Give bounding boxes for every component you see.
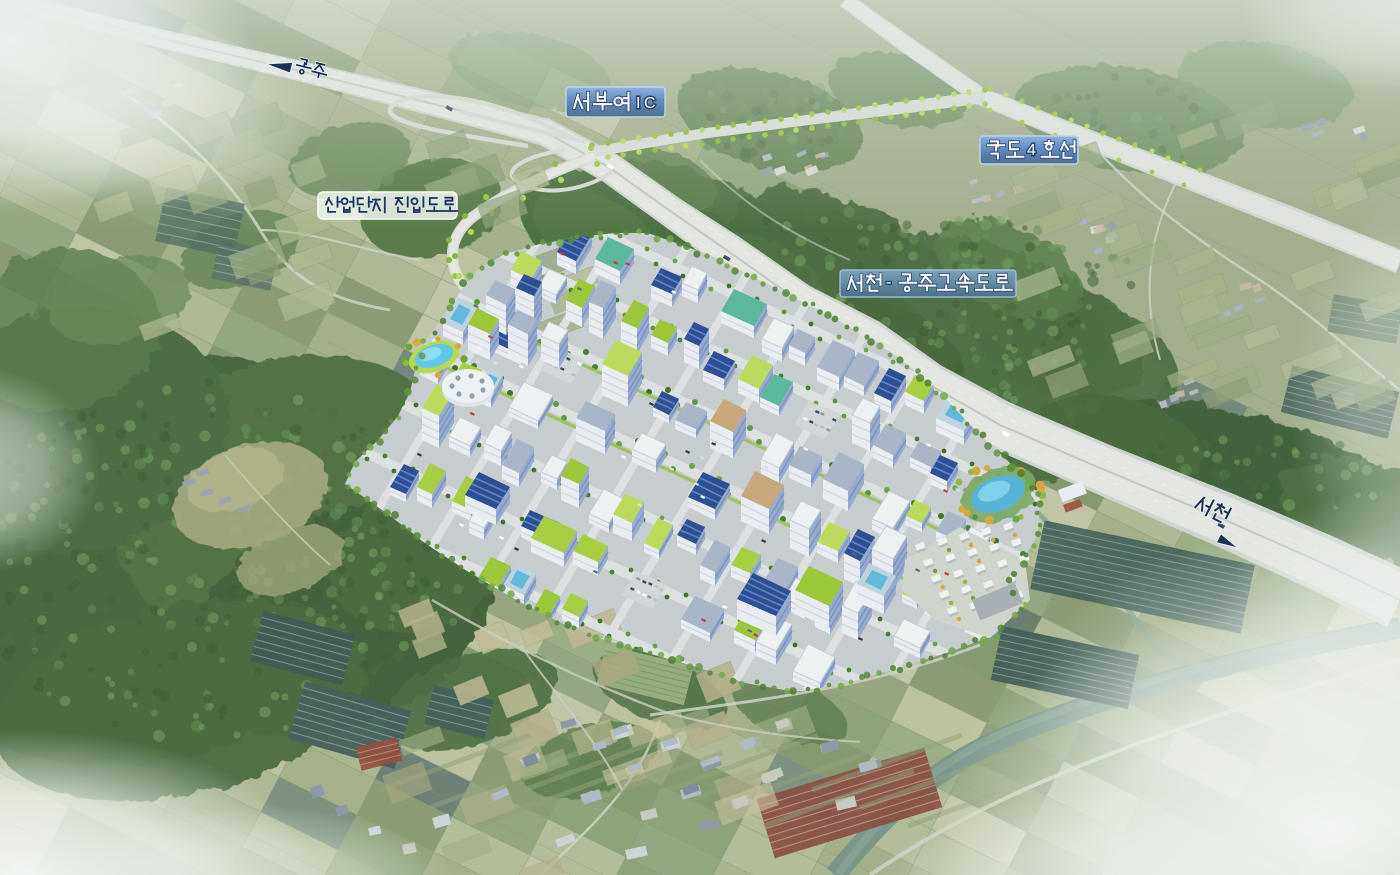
svg-text:C: C (644, 95, 656, 112)
svg-text:I: I (636, 95, 640, 112)
svg-text:4: 4 (1027, 142, 1036, 159)
svg-text:-: - (886, 274, 891, 291)
